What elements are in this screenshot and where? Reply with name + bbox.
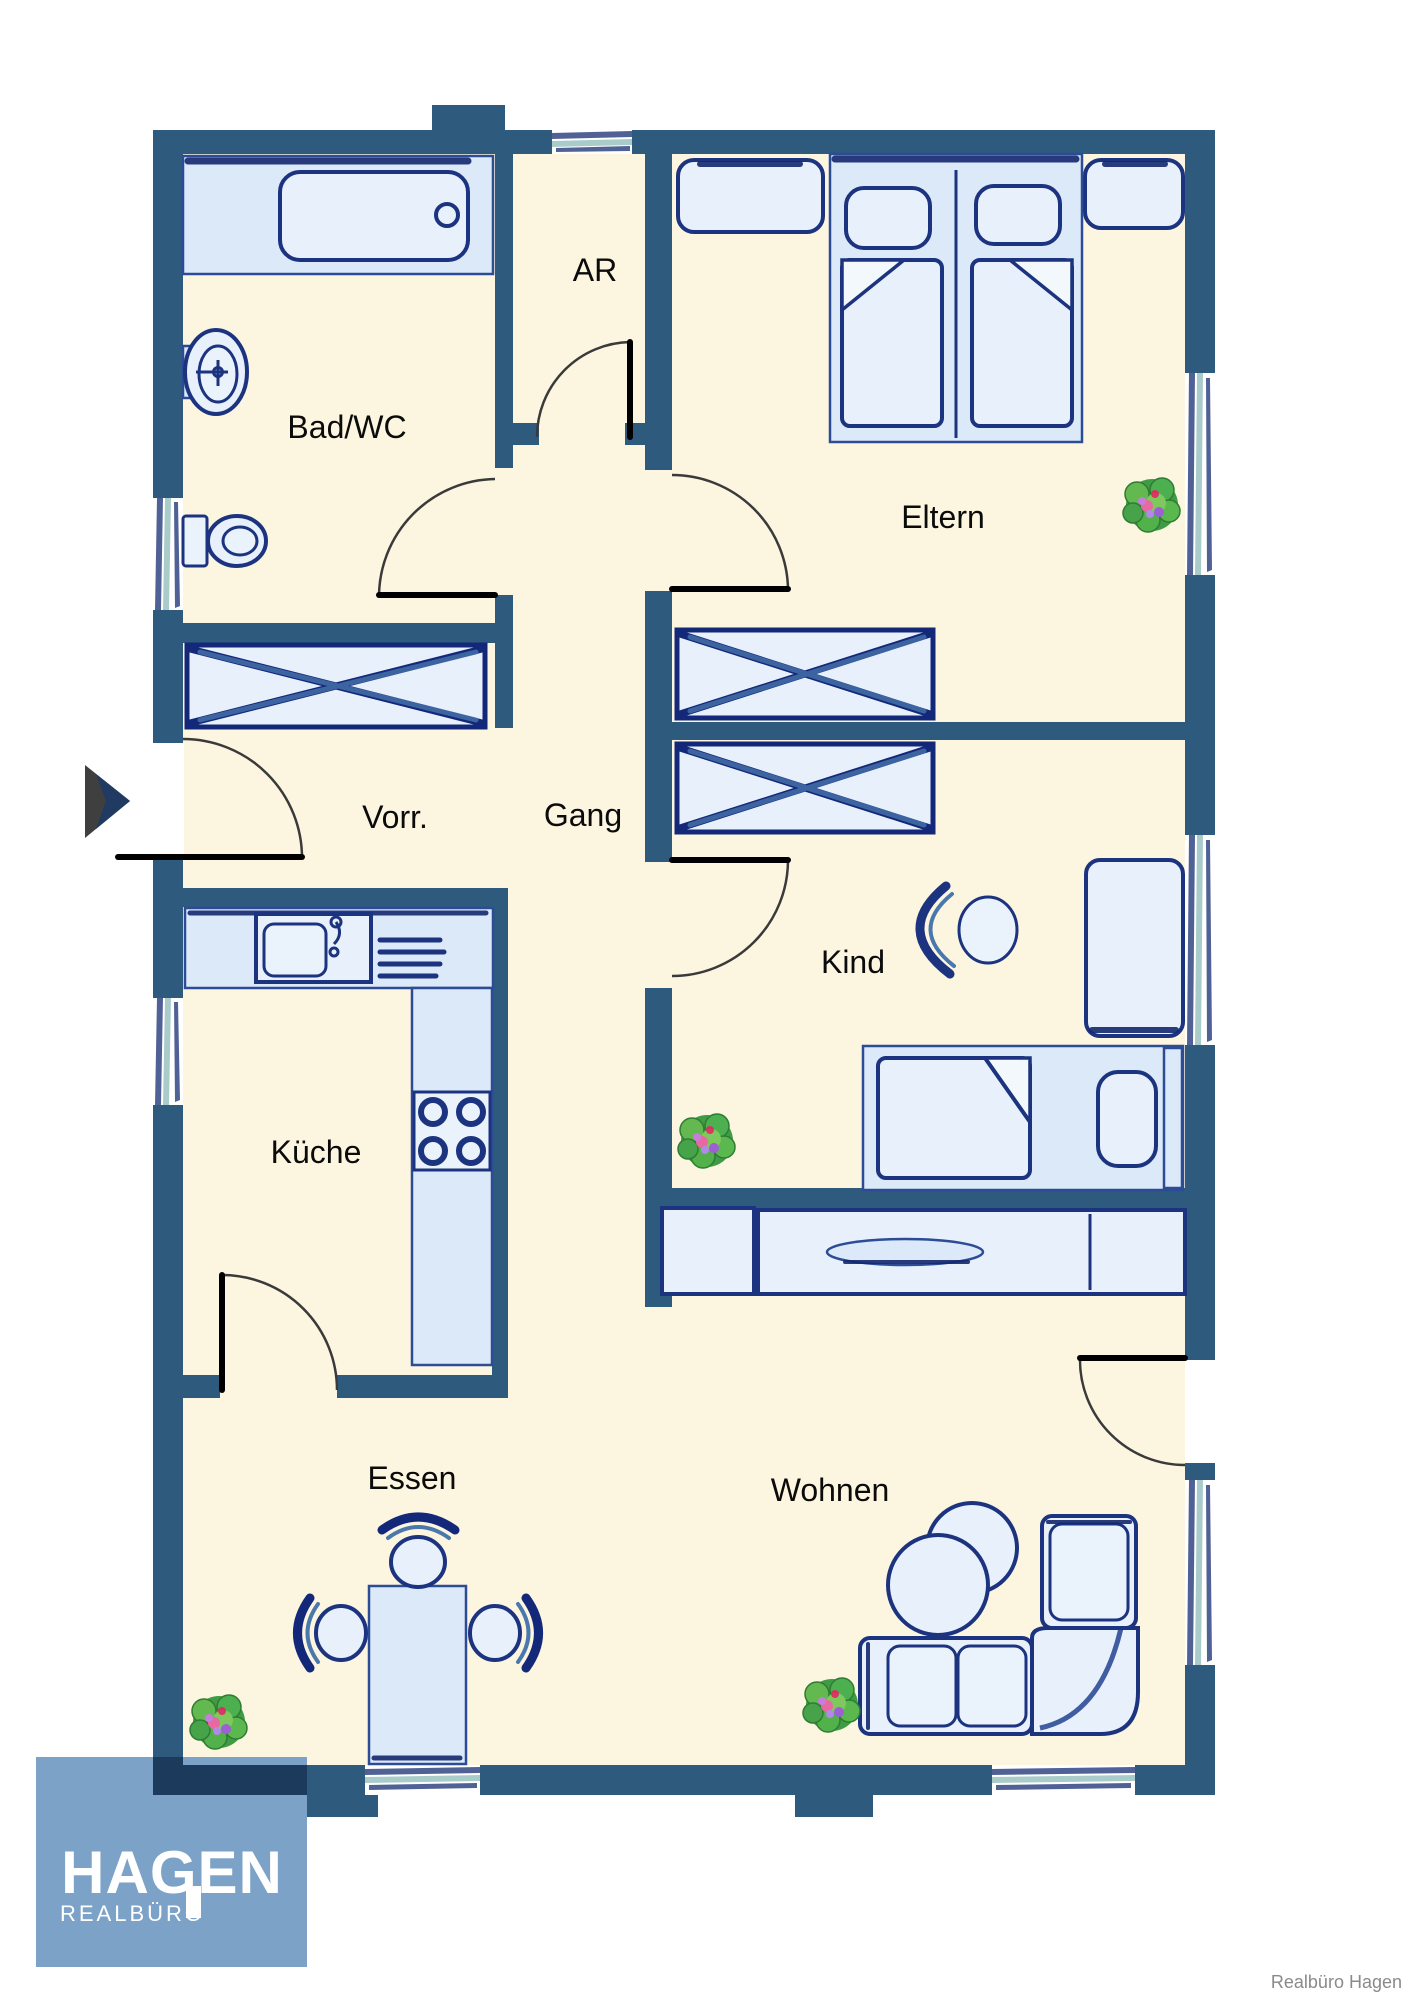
wardrobe-vorr-icon bbox=[187, 645, 485, 727]
toilet-icon bbox=[183, 516, 266, 566]
wardrobe-eltern-icon bbox=[677, 630, 933, 718]
room-label-wohnen: Wohnen bbox=[771, 1472, 890, 1508]
desk-icon bbox=[1086, 860, 1183, 1036]
room-label-gang: Gang bbox=[544, 797, 622, 833]
window-ar-icon bbox=[552, 130, 632, 154]
window-wohnen-bottom-icon bbox=[992, 1765, 1135, 1795]
room-label-kueche: Küche bbox=[271, 1134, 362, 1170]
logo-block: HAGEN REALBÜRO bbox=[36, 1757, 307, 1967]
room-label-kind: Kind bbox=[821, 944, 885, 980]
room-label-eltern: Eltern bbox=[901, 499, 985, 535]
window-bad-icon bbox=[153, 498, 183, 610]
window-eltern-icon bbox=[1185, 373, 1215, 575]
wash-basin-icon bbox=[183, 330, 247, 414]
attribution-text: Realbüro Hagen bbox=[1271, 1972, 1402, 1992]
logo-title: HAGEN bbox=[61, 1839, 283, 1906]
room-label-vorr: Vorr. bbox=[362, 799, 428, 835]
wardrobe-kind-icon bbox=[677, 744, 933, 832]
room-label-essen: Essen bbox=[368, 1460, 457, 1496]
window-wohnen-icon bbox=[1185, 1480, 1215, 1665]
window-essen-icon bbox=[365, 1765, 480, 1795]
entrance-arrow-icon bbox=[85, 765, 130, 838]
room-label-bad: Bad/WC bbox=[287, 409, 406, 445]
double-bed-icon bbox=[830, 154, 1082, 442]
dining-table-icon bbox=[369, 1586, 466, 1764]
stove-icon bbox=[414, 1092, 490, 1170]
single-bed-icon bbox=[863, 1046, 1183, 1190]
window-kueche-icon bbox=[153, 998, 183, 1105]
nightstand-icon bbox=[1085, 160, 1183, 228]
entrance-opening bbox=[148, 743, 184, 860]
room-label-ar: AR bbox=[573, 252, 617, 288]
window-kind-icon bbox=[1185, 835, 1215, 1045]
bathtub-icon bbox=[183, 156, 493, 274]
floor-plan-page: Bad/WC AR Eltern Vorr. Gang Kind Küche E… bbox=[0, 0, 1413, 2000]
dresser-icon bbox=[678, 160, 823, 232]
sideboard-icon bbox=[662, 1208, 1185, 1294]
floor-plan-drawing: Bad/WC AR Eltern Vorr. Gang Kind Küche E… bbox=[0, 0, 1413, 2000]
logo-subtitle: REALBÜRO bbox=[60, 1901, 205, 1926]
terrace-opening bbox=[1185, 1360, 1216, 1463]
